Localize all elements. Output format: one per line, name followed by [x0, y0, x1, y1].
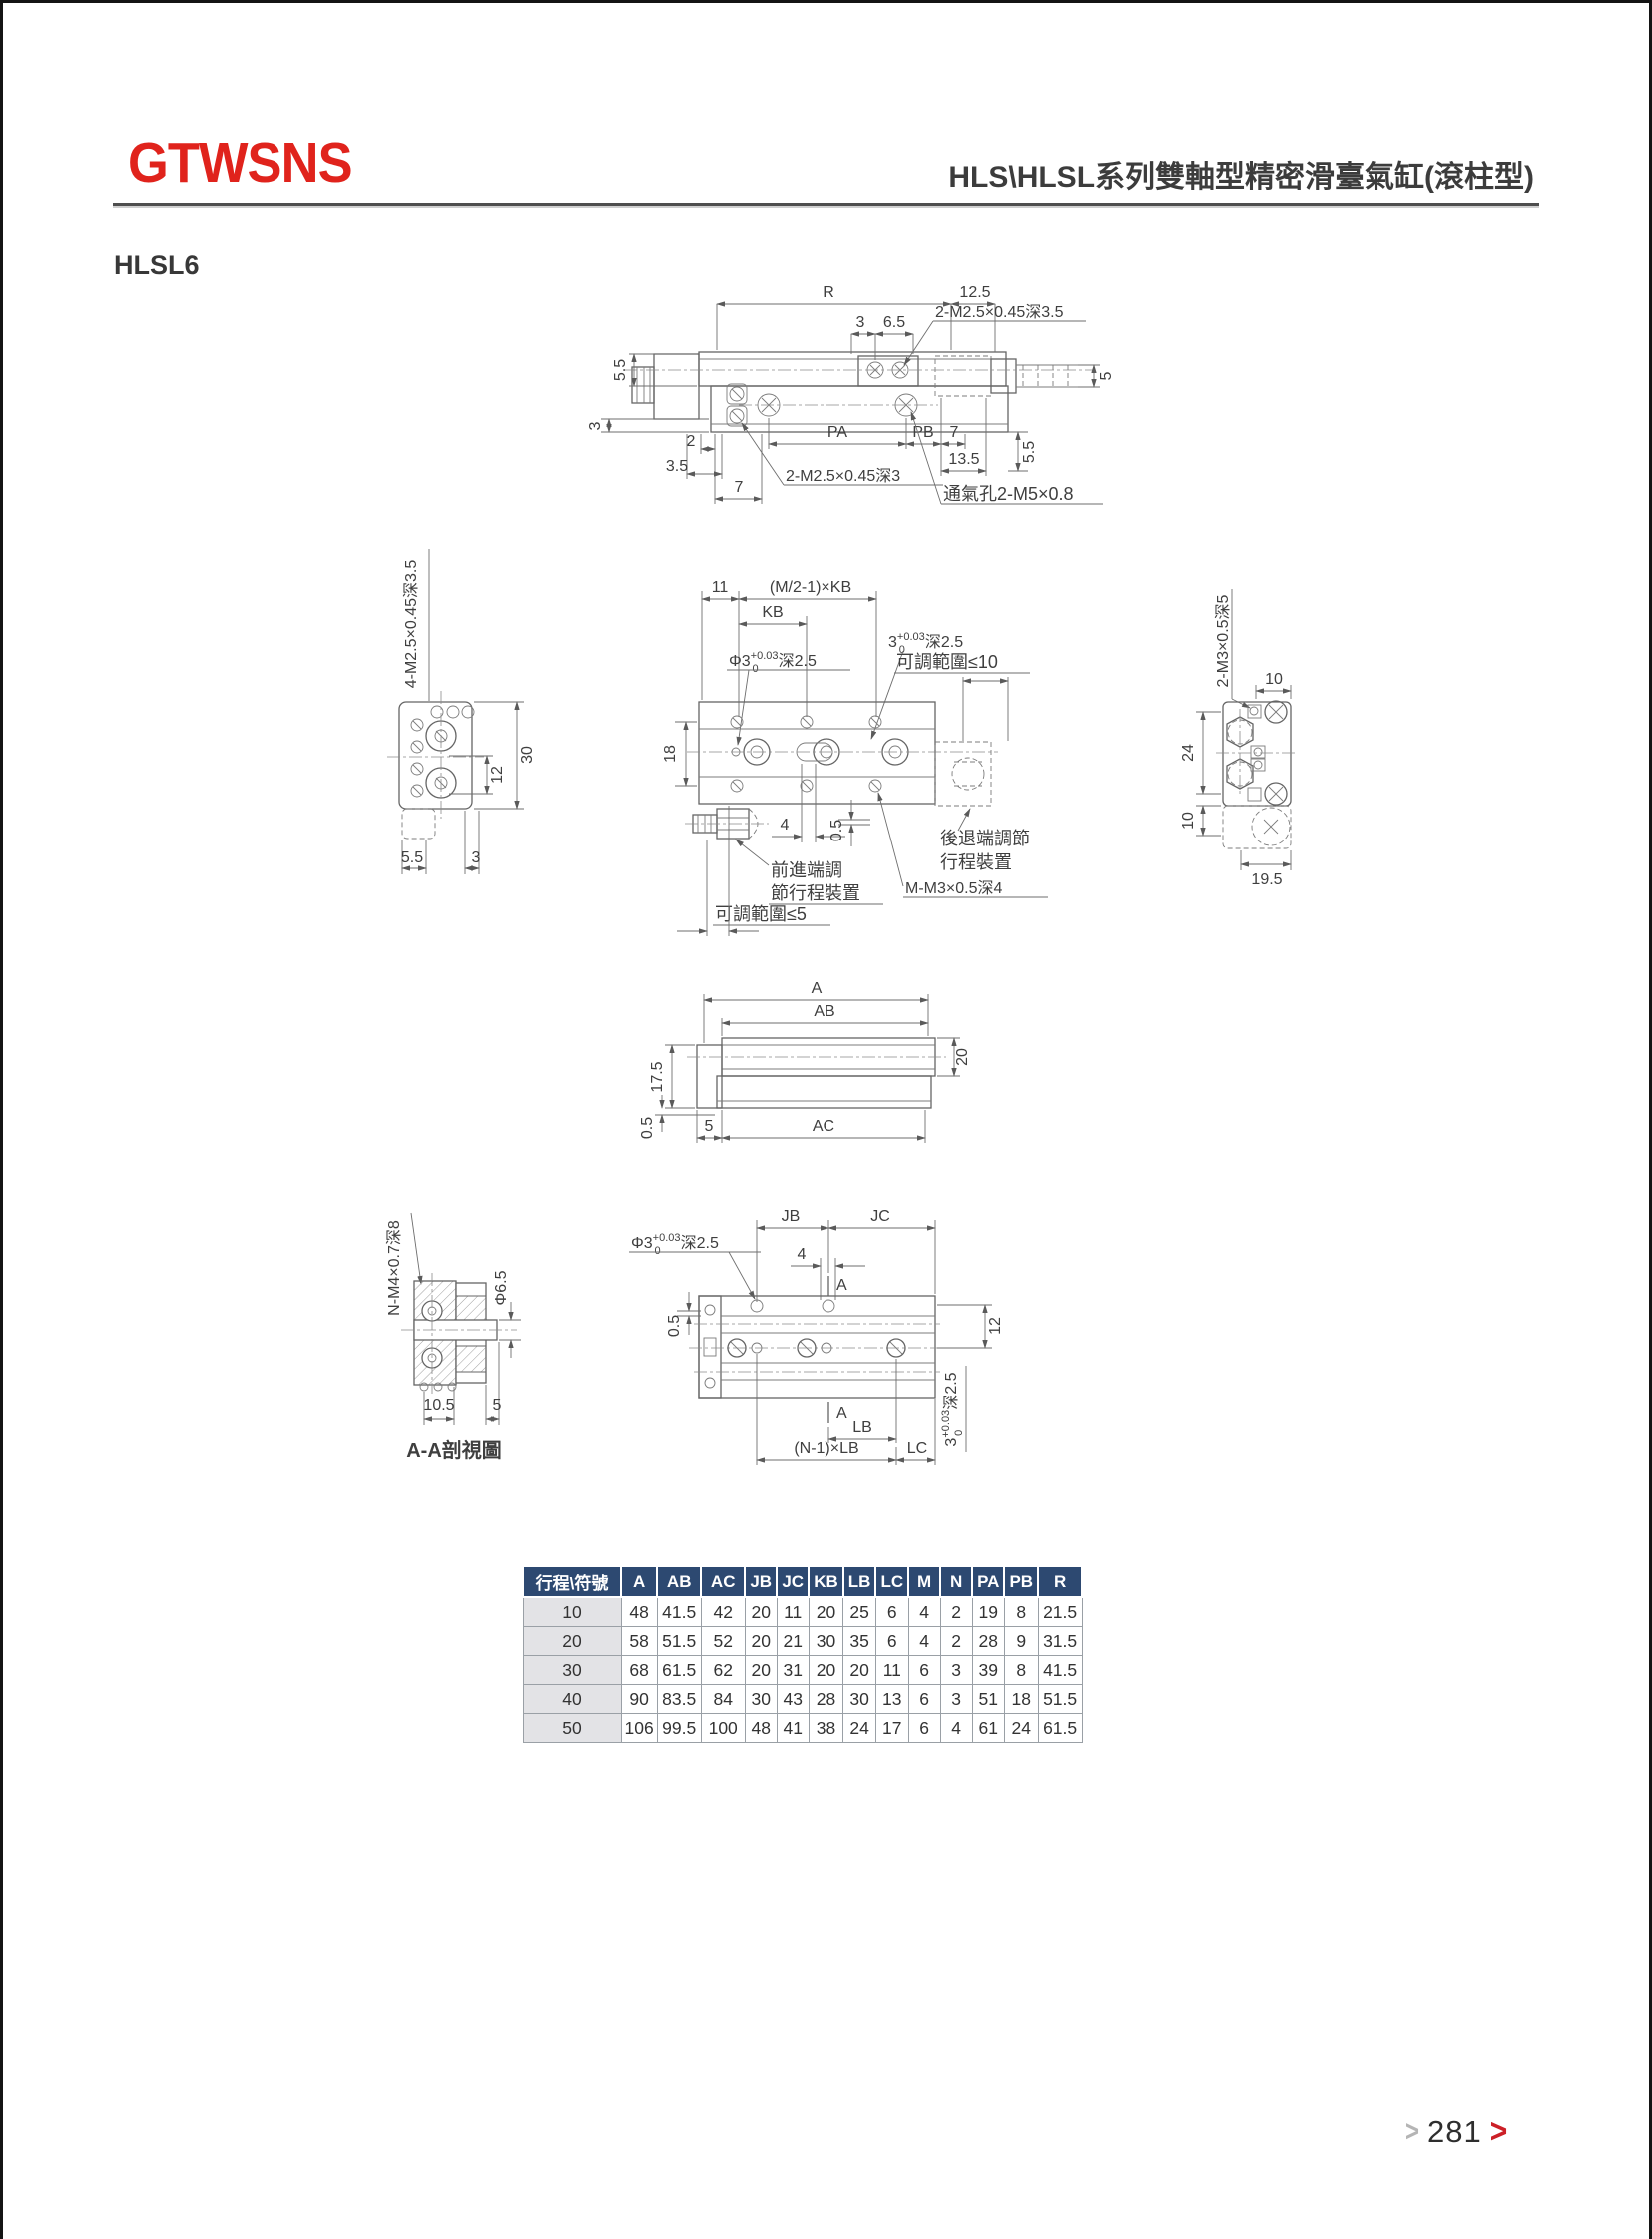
dimension-value-cell: 2 — [940, 1597, 972, 1627]
dim-label: 17.5 — [649, 1061, 666, 1092]
dim-label: 5 — [705, 1118, 714, 1135]
dim-label: 12.5 — [959, 284, 990, 301]
dimension-value-cell: 28 — [809, 1685, 843, 1714]
dim-label: 19.5 — [1251, 871, 1282, 888]
column-header: AB — [657, 1566, 701, 1597]
dimension-value-cell: 4 — [940, 1714, 972, 1743]
dimension-value-cell: 30 — [745, 1685, 777, 1714]
section-marker: A — [836, 1405, 847, 1422]
dim-label: 3 — [472, 849, 481, 866]
dimension-value-cell: 18 — [1004, 1685, 1038, 1714]
dimension-value-cell: 30 — [843, 1685, 876, 1714]
dimension-value-cell: 20 — [745, 1656, 777, 1685]
thread-callout: 2-M2.5×0.45深3.5 — [935, 303, 1064, 321]
dimension-value-cell: 11 — [875, 1656, 908, 1685]
page-number-block: > 281 > — [1405, 2114, 1507, 2150]
dim-label: 18 — [662, 745, 679, 763]
column-header: N — [940, 1566, 972, 1597]
dimension-value-cell: 68 — [621, 1656, 657, 1685]
dim-label: AC — [813, 1118, 834, 1135]
dimension-value-cell: 58 — [621, 1627, 657, 1656]
table-row: 104841.5422011202564219821.5 — [523, 1597, 1082, 1627]
dimension-value-cell: 4 — [908, 1597, 940, 1627]
dimension-value-cell: 19 — [972, 1597, 1004, 1627]
dimension-value-cell: 21 — [777, 1627, 809, 1656]
dimension-value-cell: 17 — [875, 1714, 908, 1743]
dimension-value-cell: 48 — [745, 1714, 777, 1743]
dimension-value-cell: 51.5 — [657, 1627, 701, 1656]
forward-adjuster-label: 前進端調 — [771, 860, 842, 880]
dimension-value-cell: 11 — [777, 1597, 809, 1627]
thread-callout: 2-M2.5×0.45深3 — [786, 467, 900, 485]
dim-label: 7 — [735, 479, 744, 496]
drawing-top-view: R 12.5 3 6.5 2-M2.5×0.45深3.5 5.5 5 3 2 3… — [439, 210, 1118, 509]
dim-label: JC — [870, 1208, 890, 1225]
column-header: R — [1038, 1566, 1082, 1597]
page-number: 281 — [1427, 2114, 1482, 2150]
adjust-range-label: 可調範圍≤10 — [896, 652, 998, 672]
dimension-value-cell: 25 — [843, 1597, 876, 1627]
dim-label: 5.5 — [612, 359, 629, 381]
dim-label: 0.5 — [666, 1315, 683, 1337]
stroke-label-cell: 50 — [523, 1714, 621, 1743]
chevron-right-icon: > — [1490, 2112, 1508, 2151]
dim-label: PA — [827, 424, 847, 441]
dim-label: 13.5 — [948, 451, 979, 468]
dimension-value-cell: 6 — [875, 1627, 908, 1656]
dimension-value-cell: 20 — [745, 1597, 777, 1627]
section-caption: A-A剖視圖 — [406, 1438, 502, 1462]
dim-label: 2 — [687, 433, 696, 450]
dimension-value-cell: 21.5 — [1038, 1597, 1082, 1627]
dim-label: 12 — [489, 766, 506, 784]
vent-callout: 通氣孔2-M5×0.8 — [943, 484, 1074, 504]
drawing-left-end-view: 4-M2.5×0.45深3.5 30 12 5.5 3 — [270, 439, 529, 918]
dim-label: 3 — [587, 421, 604, 430]
thread-callout: N-M4×0.7深8 — [385, 1220, 403, 1316]
dim-label: 0.5 — [639, 1117, 656, 1139]
dimension-value-cell: 30 — [809, 1627, 843, 1656]
dimension-value-cell: 83.5 — [657, 1685, 701, 1714]
dimension-value-cell: 20 — [745, 1627, 777, 1656]
dimension-value-cell: 43 — [777, 1685, 809, 1714]
dimension-value-cell: 61.5 — [657, 1656, 701, 1685]
forward-adjuster-label: 節行程裝置 — [771, 883, 860, 903]
dim-label: 10 — [1265, 671, 1283, 688]
dim-label: 20 — [954, 1048, 971, 1066]
dim-label: 5.5 — [1021, 441, 1038, 463]
dim-label: 4 — [798, 1246, 807, 1263]
dimension-value-cell: 24 — [1004, 1714, 1038, 1743]
model-label: HLSL6 — [114, 250, 200, 280]
column-header: LC — [875, 1566, 908, 1597]
dimension-value-cell: 9 — [1004, 1627, 1038, 1656]
dim-label: (M/2-1)×KB — [770, 579, 851, 596]
dim-label: 24 — [1180, 744, 1197, 762]
dim-label: LC — [907, 1440, 927, 1457]
column-header: PB — [1004, 1566, 1038, 1597]
column-header: KB — [809, 1566, 843, 1597]
column-header: AC — [701, 1566, 745, 1597]
drawing-section-aa: N-M4×0.7深8 Φ6.5 10.5 5 A-A剖視圖 — [260, 1168, 529, 1497]
drawing-bottom-view: Φ3+0.030深2.5 JB JC 4 A 0.5 12 3+0.030深2.… — [589, 1178, 1048, 1497]
dimension-value-cell: 6 — [908, 1685, 940, 1714]
dim-label: 3.5 — [666, 458, 688, 475]
dimension-value-cell: 8 — [1004, 1656, 1038, 1685]
dimension-value-cell: 20 — [809, 1597, 843, 1627]
chevron-left-icon: > — [1405, 2115, 1419, 2150]
drawing-right-end-view: 2-M3×0.5深5 10 24 10 19.5 — [1128, 539, 1387, 998]
dimension-value-cell: 13 — [875, 1685, 908, 1714]
column-header: JB — [745, 1566, 777, 1597]
dim-label: 11 — [712, 579, 729, 596]
stroke-label-cell: 20 — [523, 1627, 621, 1656]
dim-label: A — [812, 980, 823, 997]
table-row: 5010699.5100484138241764612461.5 — [523, 1714, 1082, 1743]
dimension-value-cell: 6 — [908, 1656, 940, 1685]
dimension-value-cell: 42 — [701, 1597, 745, 1627]
dimension-value-cell: 61 — [972, 1714, 1004, 1743]
dimension-value-cell: 39 — [972, 1656, 1004, 1685]
dimension-value-cell: 6 — [875, 1597, 908, 1627]
dimension-value-cell: 51 — [972, 1685, 1004, 1714]
dim-label: Φ6.5 — [493, 1270, 510, 1305]
thread-callout: 4-M2.5×0.45深3.5 — [402, 560, 420, 689]
dimension-value-cell: 3 — [940, 1656, 972, 1685]
dim-label: 5 — [493, 1398, 502, 1414]
dimension-value-cell: 4 — [908, 1627, 940, 1656]
dim-label: 12 — [987, 1317, 1004, 1335]
dimension-value-cell: 20 — [809, 1656, 843, 1685]
dim-label: 5 — [1098, 371, 1115, 380]
hole-callout: Φ3+0.030深2.5 — [729, 650, 817, 675]
dimension-value-cell: 51.5 — [1038, 1685, 1082, 1714]
dimension-value-cell: 41 — [777, 1714, 809, 1743]
column-header: A — [621, 1566, 657, 1597]
dim-label: 5.5 — [401, 849, 423, 866]
dimension-value-cell: 106 — [621, 1714, 657, 1743]
spec-table: 行程\符號AABACJBJCKBLBLCMNPAPBR104841.542201… — [522, 1565, 1083, 1743]
column-header: LB — [843, 1566, 876, 1597]
dim-label: KB — [762, 604, 783, 621]
dimension-value-cell: 52 — [701, 1627, 745, 1656]
header-divider — [113, 203, 1539, 208]
column-header: JC — [777, 1566, 809, 1597]
thread-callout: M-M3×0.5深4 — [905, 879, 1002, 897]
dimension-value-cell: 61.5 — [1038, 1714, 1082, 1743]
column-header: PA — [972, 1566, 1004, 1597]
dim-label: 0.5 — [828, 820, 845, 841]
section-marker: A — [836, 1277, 847, 1294]
dim-label: 10 — [1180, 812, 1197, 830]
dimension-value-cell: 24 — [843, 1714, 876, 1743]
dim-label: 30 — [519, 746, 536, 764]
table-row: 409083.584304328301363511851.5 — [523, 1685, 1082, 1714]
dimension-value-cell: 28 — [972, 1627, 1004, 1656]
dim-label: 7 — [950, 424, 959, 441]
dim-label: (N-1)×LB — [794, 1440, 858, 1457]
dim-label: AB — [814, 1003, 834, 1020]
dimension-value-cell: 41.5 — [1038, 1656, 1082, 1685]
stroke-label-cell: 30 — [523, 1656, 621, 1685]
column-header: M — [908, 1566, 940, 1597]
back-adjuster-label: 後退端調節 — [940, 829, 1030, 848]
dimension-value-cell: 3 — [940, 1685, 972, 1714]
dim-label: 10.5 — [423, 1398, 454, 1414]
dimension-value-cell: 31 — [777, 1656, 809, 1685]
dimension-value-cell: 20 — [843, 1656, 876, 1685]
dim-label: LB — [852, 1419, 872, 1436]
dimension-value-cell: 99.5 — [657, 1714, 701, 1743]
table-row: 205851.5522021303564228931.5 — [523, 1627, 1082, 1656]
table-row: 306861.56220312020116339841.5 — [523, 1656, 1082, 1685]
dimension-value-cell: 38 — [809, 1714, 843, 1743]
dimension-value-cell: 62 — [701, 1656, 745, 1685]
dimension-value-cell: 41.5 — [657, 1597, 701, 1627]
dim-label: R — [823, 284, 834, 301]
back-adjuster-label: 行程裝置 — [940, 852, 1012, 872]
dimension-value-cell: 48 — [621, 1597, 657, 1627]
dimension-value-cell: 35 — [843, 1627, 876, 1656]
page-title: HLS\HLSL系列雙軸型精密滑臺氣缸(滾柱型) — [948, 152, 1534, 196]
dim-label: 3 — [856, 314, 865, 331]
dimension-value-cell: 84 — [701, 1685, 745, 1714]
dimension-value-cell: 6 — [908, 1714, 940, 1743]
drawing-plan-view: 11 (M/2-1)×KB KB Φ3+0.030深2.5 3+0.030深2.… — [599, 569, 1058, 1008]
stroke-label-cell: 40 — [523, 1685, 621, 1714]
stroke-label-cell: 10 — [523, 1597, 621, 1627]
dimension-value-cell: 100 — [701, 1714, 745, 1743]
drawing-side-profile: A AB 17.5 0.5 5 AC 20 — [629, 948, 968, 1178]
hole-callout: 3+0.030深2.5 — [940, 1372, 965, 1446]
dim-label: 4 — [781, 817, 790, 834]
thread-callout: 2-M3×0.5深5 — [1214, 594, 1232, 687]
dimension-value-cell: 31.5 — [1038, 1627, 1082, 1656]
dimension-value-cell: 2 — [940, 1627, 972, 1656]
hole-callout: Φ3+0.030深2.5 — [631, 1232, 719, 1257]
column-header: 行程\符號 — [523, 1566, 621, 1597]
brand-logo: GTWSNS — [128, 130, 352, 196]
dimension-value-cell: 90 — [621, 1685, 657, 1714]
dimension-value-cell: 8 — [1004, 1597, 1038, 1627]
dim-label: 6.5 — [883, 314, 905, 331]
dim-label: JB — [782, 1208, 801, 1225]
